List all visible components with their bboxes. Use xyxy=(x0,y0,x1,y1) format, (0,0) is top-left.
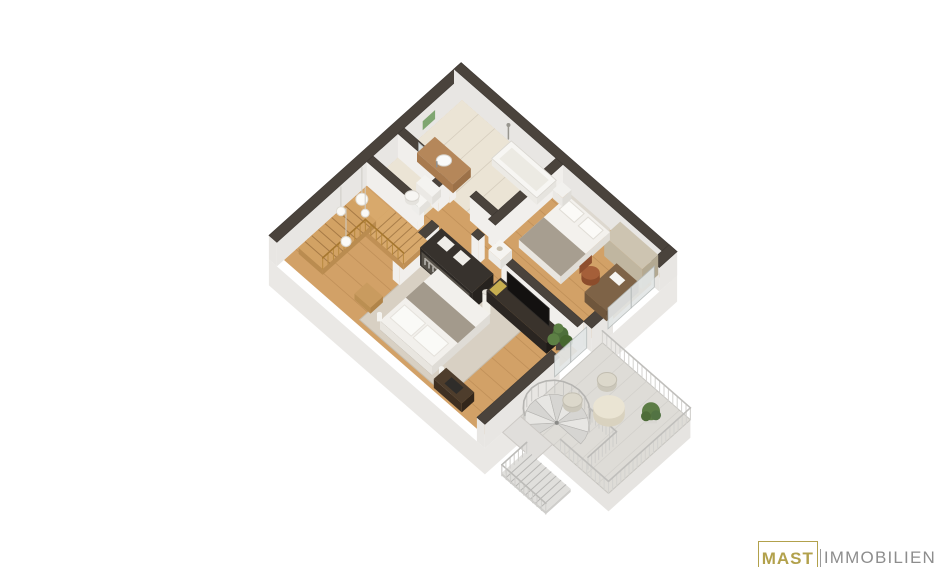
balcony-table xyxy=(593,395,625,427)
screenshot-canvas: MAST IMMOBILIEN xyxy=(0,0,950,575)
toilet-bowl xyxy=(405,191,419,206)
balcony-chair-1 xyxy=(597,373,616,392)
logo-mast-text: MAST xyxy=(762,550,814,567)
bedside-lamp-1 xyxy=(377,312,382,322)
floor-plan-3d-render xyxy=(0,0,950,575)
logo-separator xyxy=(820,549,821,567)
vanity-sink xyxy=(436,155,451,166)
logo-mast-box: MAST xyxy=(758,541,818,567)
balcony-chair-2 xyxy=(563,393,582,412)
brand-logo: MAST IMMOBILIEN xyxy=(758,541,936,567)
cabinet-decor xyxy=(497,246,503,251)
logo-immobilien-text: IMMOBILIEN xyxy=(824,549,936,567)
